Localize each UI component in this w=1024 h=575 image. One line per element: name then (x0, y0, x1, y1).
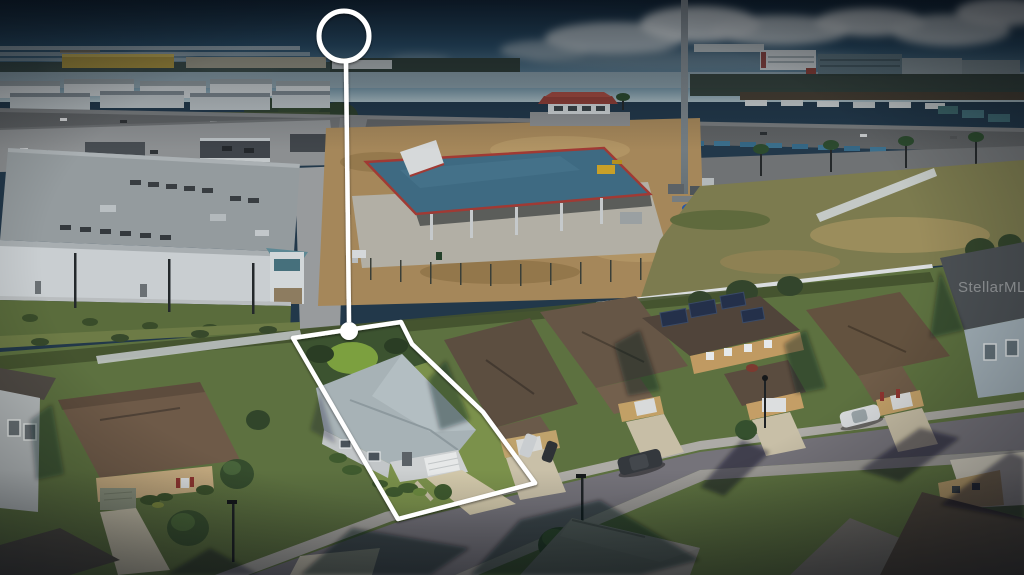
marker-line (346, 61, 349, 322)
aerial-scene (0, 0, 1024, 575)
aerial-photo: StellarMLS (0, 0, 1024, 575)
marker-dot (340, 322, 358, 340)
